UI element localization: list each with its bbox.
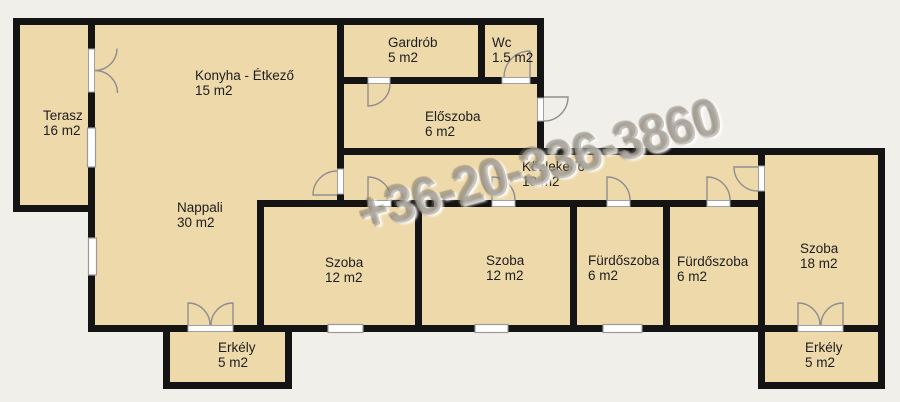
room-label-erkely-right: Erkély 5 m2 — [805, 340, 843, 370]
room-label-gardrob: Gardrób 5 m2 — [388, 35, 438, 65]
room-label-wc: Wc 1.5 m2 — [492, 35, 533, 65]
room-label-szoba1: Szoba 12 m2 — [325, 255, 363, 285]
room-area: 6 m2 — [425, 124, 481, 139]
room-name: Közlekedő — [522, 159, 585, 174]
room-area: 5 m2 — [388, 50, 438, 65]
room-szoba18 — [758, 148, 885, 332]
room-name: Fürdőszoba — [677, 254, 748, 269]
room-area: 30 m2 — [177, 215, 223, 230]
room-name: Terasz — [43, 108, 83, 123]
room-label-konyha: Konyha - Étkező 15 m2 — [195, 68, 294, 98]
room-label-eloszoba: Előszoba 6 m2 — [425, 109, 481, 139]
room-area: 15 m2 — [195, 83, 294, 98]
room-area: 5 m2 — [805, 355, 843, 370]
room-name: Nappali — [177, 200, 223, 215]
room-name: Gardrób — [388, 35, 438, 50]
room-area: 5 m2 — [218, 355, 256, 370]
room-name: Wc — [492, 35, 533, 50]
room-area: 12 m2 — [325, 270, 363, 285]
room-label-szoba2: Szoba 12 m2 — [486, 253, 524, 283]
room-area: 18 m2 — [800, 256, 838, 271]
room-name: Erkély — [805, 340, 843, 355]
room-name: Előszoba — [425, 109, 481, 124]
room-label-erkely-left: Erkély 5 m2 — [218, 340, 256, 370]
room-area: 1.5 m2 — [492, 50, 533, 65]
room-name: Szoba — [325, 255, 363, 270]
room-name: Konyha - Étkező — [195, 68, 294, 83]
room-name: Fürdőszoba — [588, 253, 659, 268]
room-area: 6 m2 — [677, 269, 748, 284]
room-label-nappali: Nappali 30 m2 — [177, 200, 223, 230]
room-area: 10 m2 — [522, 174, 585, 189]
room-label-terasz: Terasz 16 m2 — [43, 108, 83, 138]
room-area: 16 m2 — [43, 123, 83, 138]
room-name: Szoba — [800, 241, 838, 256]
room-name: Szoba — [486, 253, 524, 268]
room-label-furdoszoba1: Fürdőszoba 6 m2 — [588, 253, 659, 283]
room-name: Erkély — [218, 340, 256, 355]
room-area: 12 m2 — [486, 268, 524, 283]
room-label-furdoszoba2: Fürdőszoba 6 m2 — [677, 254, 748, 284]
room-label-kozlekedo: Közlekedő 10 m2 — [522, 159, 585, 189]
door-swing-entrance-icon — [544, 97, 568, 121]
room-area: 6 m2 — [588, 268, 659, 283]
floor-plan: Terasz 16 m2 Konyha - Étkező 15 m2 Gardr… — [0, 0, 900, 402]
room-label-szoba18: Szoba 18 m2 — [800, 241, 838, 271]
